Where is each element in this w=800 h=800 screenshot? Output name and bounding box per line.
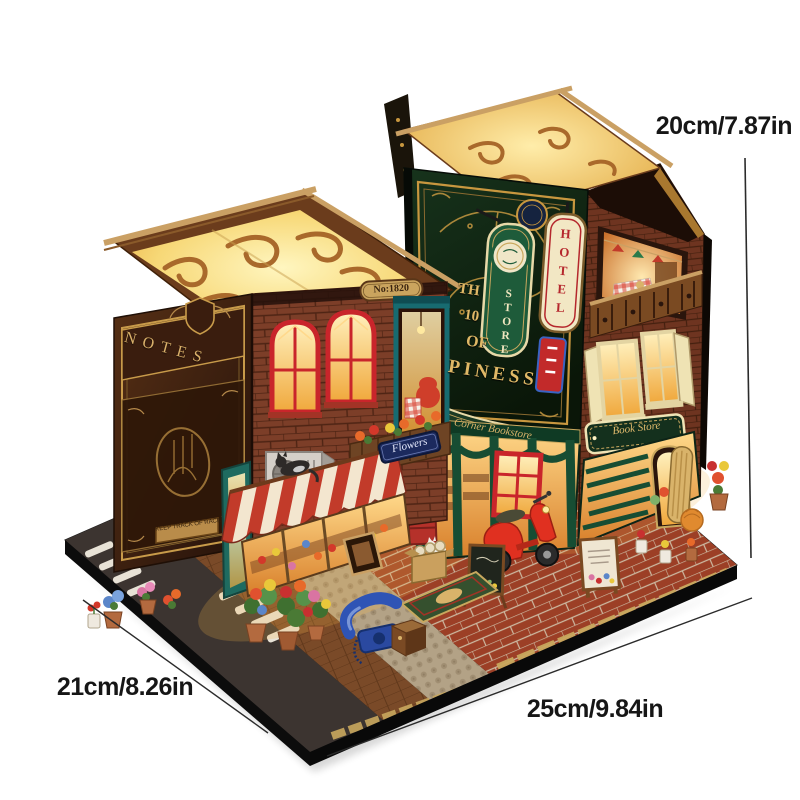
neon-sign — [536, 337, 567, 393]
depth-dimension-label: 21cm/8.26in — [50, 673, 200, 702]
height-dimension-label: 20cm/7.87in — [656, 112, 792, 141]
spine-emblem — [186, 298, 214, 334]
product-photo: 20cm/7.87in 21cm/8.26in 25cm/9.84in NOTE… — [0, 0, 800, 800]
arched-window-left — [268, 322, 322, 418]
arched-window-right — [324, 312, 378, 408]
poster-sign — [580, 537, 620, 597]
height-dimension-line — [745, 158, 751, 558]
width-dimension-label: 25cm/9.84in — [520, 695, 670, 724]
pumpkin-pot — [681, 509, 703, 531]
